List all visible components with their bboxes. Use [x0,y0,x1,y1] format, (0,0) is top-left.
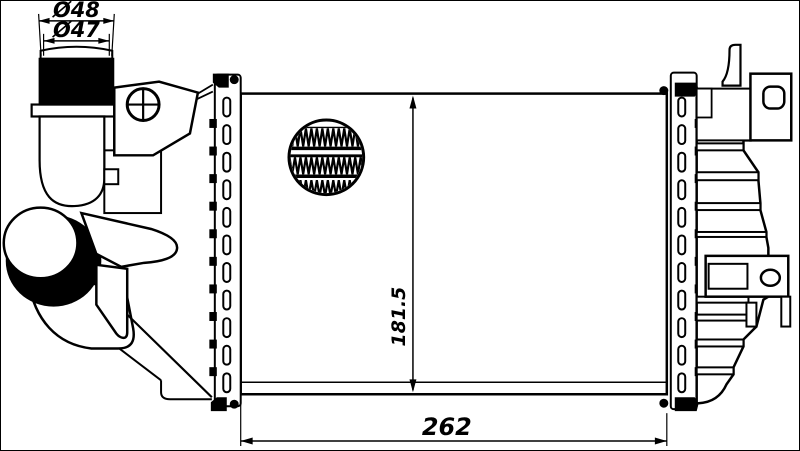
right-upper-tab [723,45,741,86]
dim-pipe-inner-label: Ø47 [52,18,100,42]
technical-drawing: Ø48 Ø47 181.5 262 [0,0,800,451]
right-tank [697,45,792,403]
pipe-opening [4,208,78,279]
left-mounting-plate [114,82,198,156]
right-middle-bracket-hole [761,270,780,286]
left-tank-assembly [4,47,212,399]
right-top-clip [659,83,698,97]
dimension-core-width: 262 [241,399,667,446]
right-side-plate-slots [678,98,685,393]
right-upper-bracket-hole [763,87,784,109]
dim-core-height-label: 181.5 [388,287,410,347]
right-bottom-clip [659,397,698,411]
left-side-plate [194,74,241,411]
pipe-boot-cap [41,47,113,59]
right-hanging-tab [781,297,790,327]
left-outlet-pipe [4,208,212,400]
dim-core-width-label: 262 [422,413,472,441]
left-tank-flange [32,105,122,117]
left-side-plate-slots [223,98,230,393]
intercooler-drawing-canvas: Ø48 Ø47 181.5 262 [1,1,799,450]
left-tank-body [40,116,105,206]
pipe-rubber-boot [39,58,115,106]
